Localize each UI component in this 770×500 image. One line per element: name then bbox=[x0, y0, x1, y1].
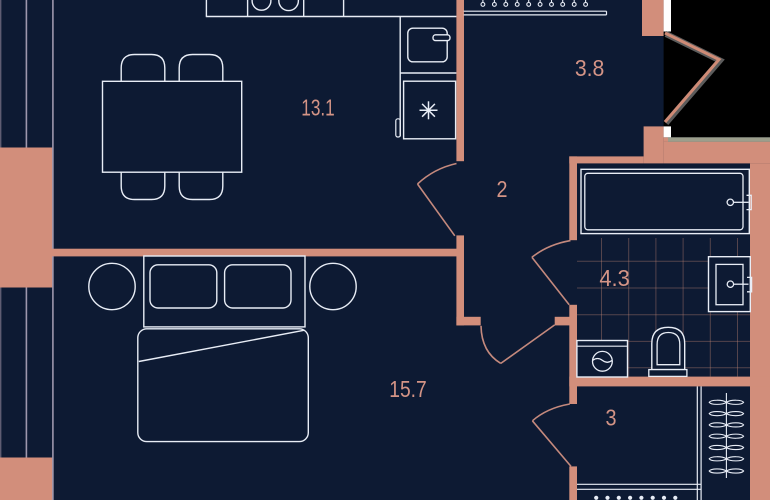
svg-text:3.8: 3.8 bbox=[575, 55, 605, 81]
svg-text:13.1: 13.1 bbox=[301, 94, 335, 120]
svg-text:15.7: 15.7 bbox=[389, 376, 427, 402]
svg-text:2: 2 bbox=[497, 176, 508, 202]
svg-text:3: 3 bbox=[606, 405, 617, 431]
svg-text:4.3: 4.3 bbox=[599, 265, 630, 291]
